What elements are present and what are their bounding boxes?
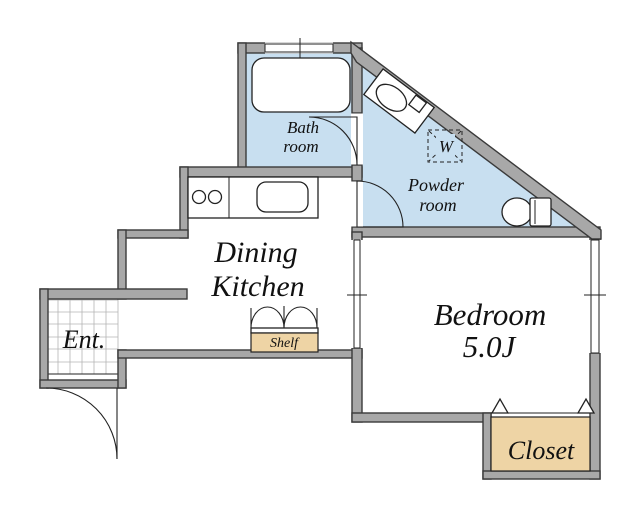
kitchen-left-wall xyxy=(180,167,188,238)
toilet-bowl xyxy=(502,198,532,226)
toilet-tank xyxy=(530,198,551,226)
closet-left-wall xyxy=(483,413,491,479)
powder-label-line2: room xyxy=(419,195,456,215)
entrance-top-wall xyxy=(40,289,187,299)
bath-label-line1: Bath xyxy=(287,118,319,137)
shelf-front xyxy=(251,328,318,333)
dining-kitchen-label-line1: Dining xyxy=(213,236,297,269)
dk-bottom-wall xyxy=(118,350,362,358)
sliding-partition xyxy=(347,240,367,348)
kitchen-counter xyxy=(188,177,318,218)
bedroom-right-wall-bottom xyxy=(590,353,600,479)
floor-plan-page: Bath room W Powder room Dining Kitchen B… xyxy=(0,0,640,518)
dining-kitchen-label-line2: Kitchen xyxy=(210,270,304,303)
kitchen-top-wall xyxy=(180,167,362,177)
bedroom-right-window xyxy=(584,240,606,353)
closet-bottom-wall xyxy=(483,471,600,479)
shelf-label: Shelf xyxy=(270,336,300,351)
entrance-label: Ent. xyxy=(62,325,106,354)
bathtub xyxy=(252,58,350,112)
entrance-bottom-wall xyxy=(40,380,126,388)
closet-door-triangle xyxy=(492,399,508,413)
entrance-door-arc xyxy=(46,388,117,459)
step-wall xyxy=(118,230,188,238)
kitchen-sink xyxy=(257,182,308,212)
bath-left-wall xyxy=(238,43,246,177)
closet-label: Closet xyxy=(508,436,575,465)
partition-lower xyxy=(352,348,362,422)
bedroom-size-label: 5.0J xyxy=(463,329,517,364)
entrance-door xyxy=(46,388,117,459)
toilet xyxy=(502,198,551,226)
bath-powder-wall-lower xyxy=(352,165,362,181)
bedroom-bottom-wall xyxy=(352,413,491,422)
shelf-doors xyxy=(251,306,317,328)
entrance-left-wall xyxy=(40,289,48,388)
bath-label-line2: room xyxy=(283,137,318,156)
stove-burner xyxy=(193,191,206,204)
stove-burner xyxy=(209,191,222,204)
floor-plan: Bath room W Powder room Dining Kitchen B… xyxy=(0,0,640,518)
powder-bottom-wall xyxy=(352,227,600,237)
washer-label: W xyxy=(439,137,455,156)
powder-label-line1: Powder xyxy=(407,175,465,195)
bedroom-label: Bedroom xyxy=(434,297,547,332)
